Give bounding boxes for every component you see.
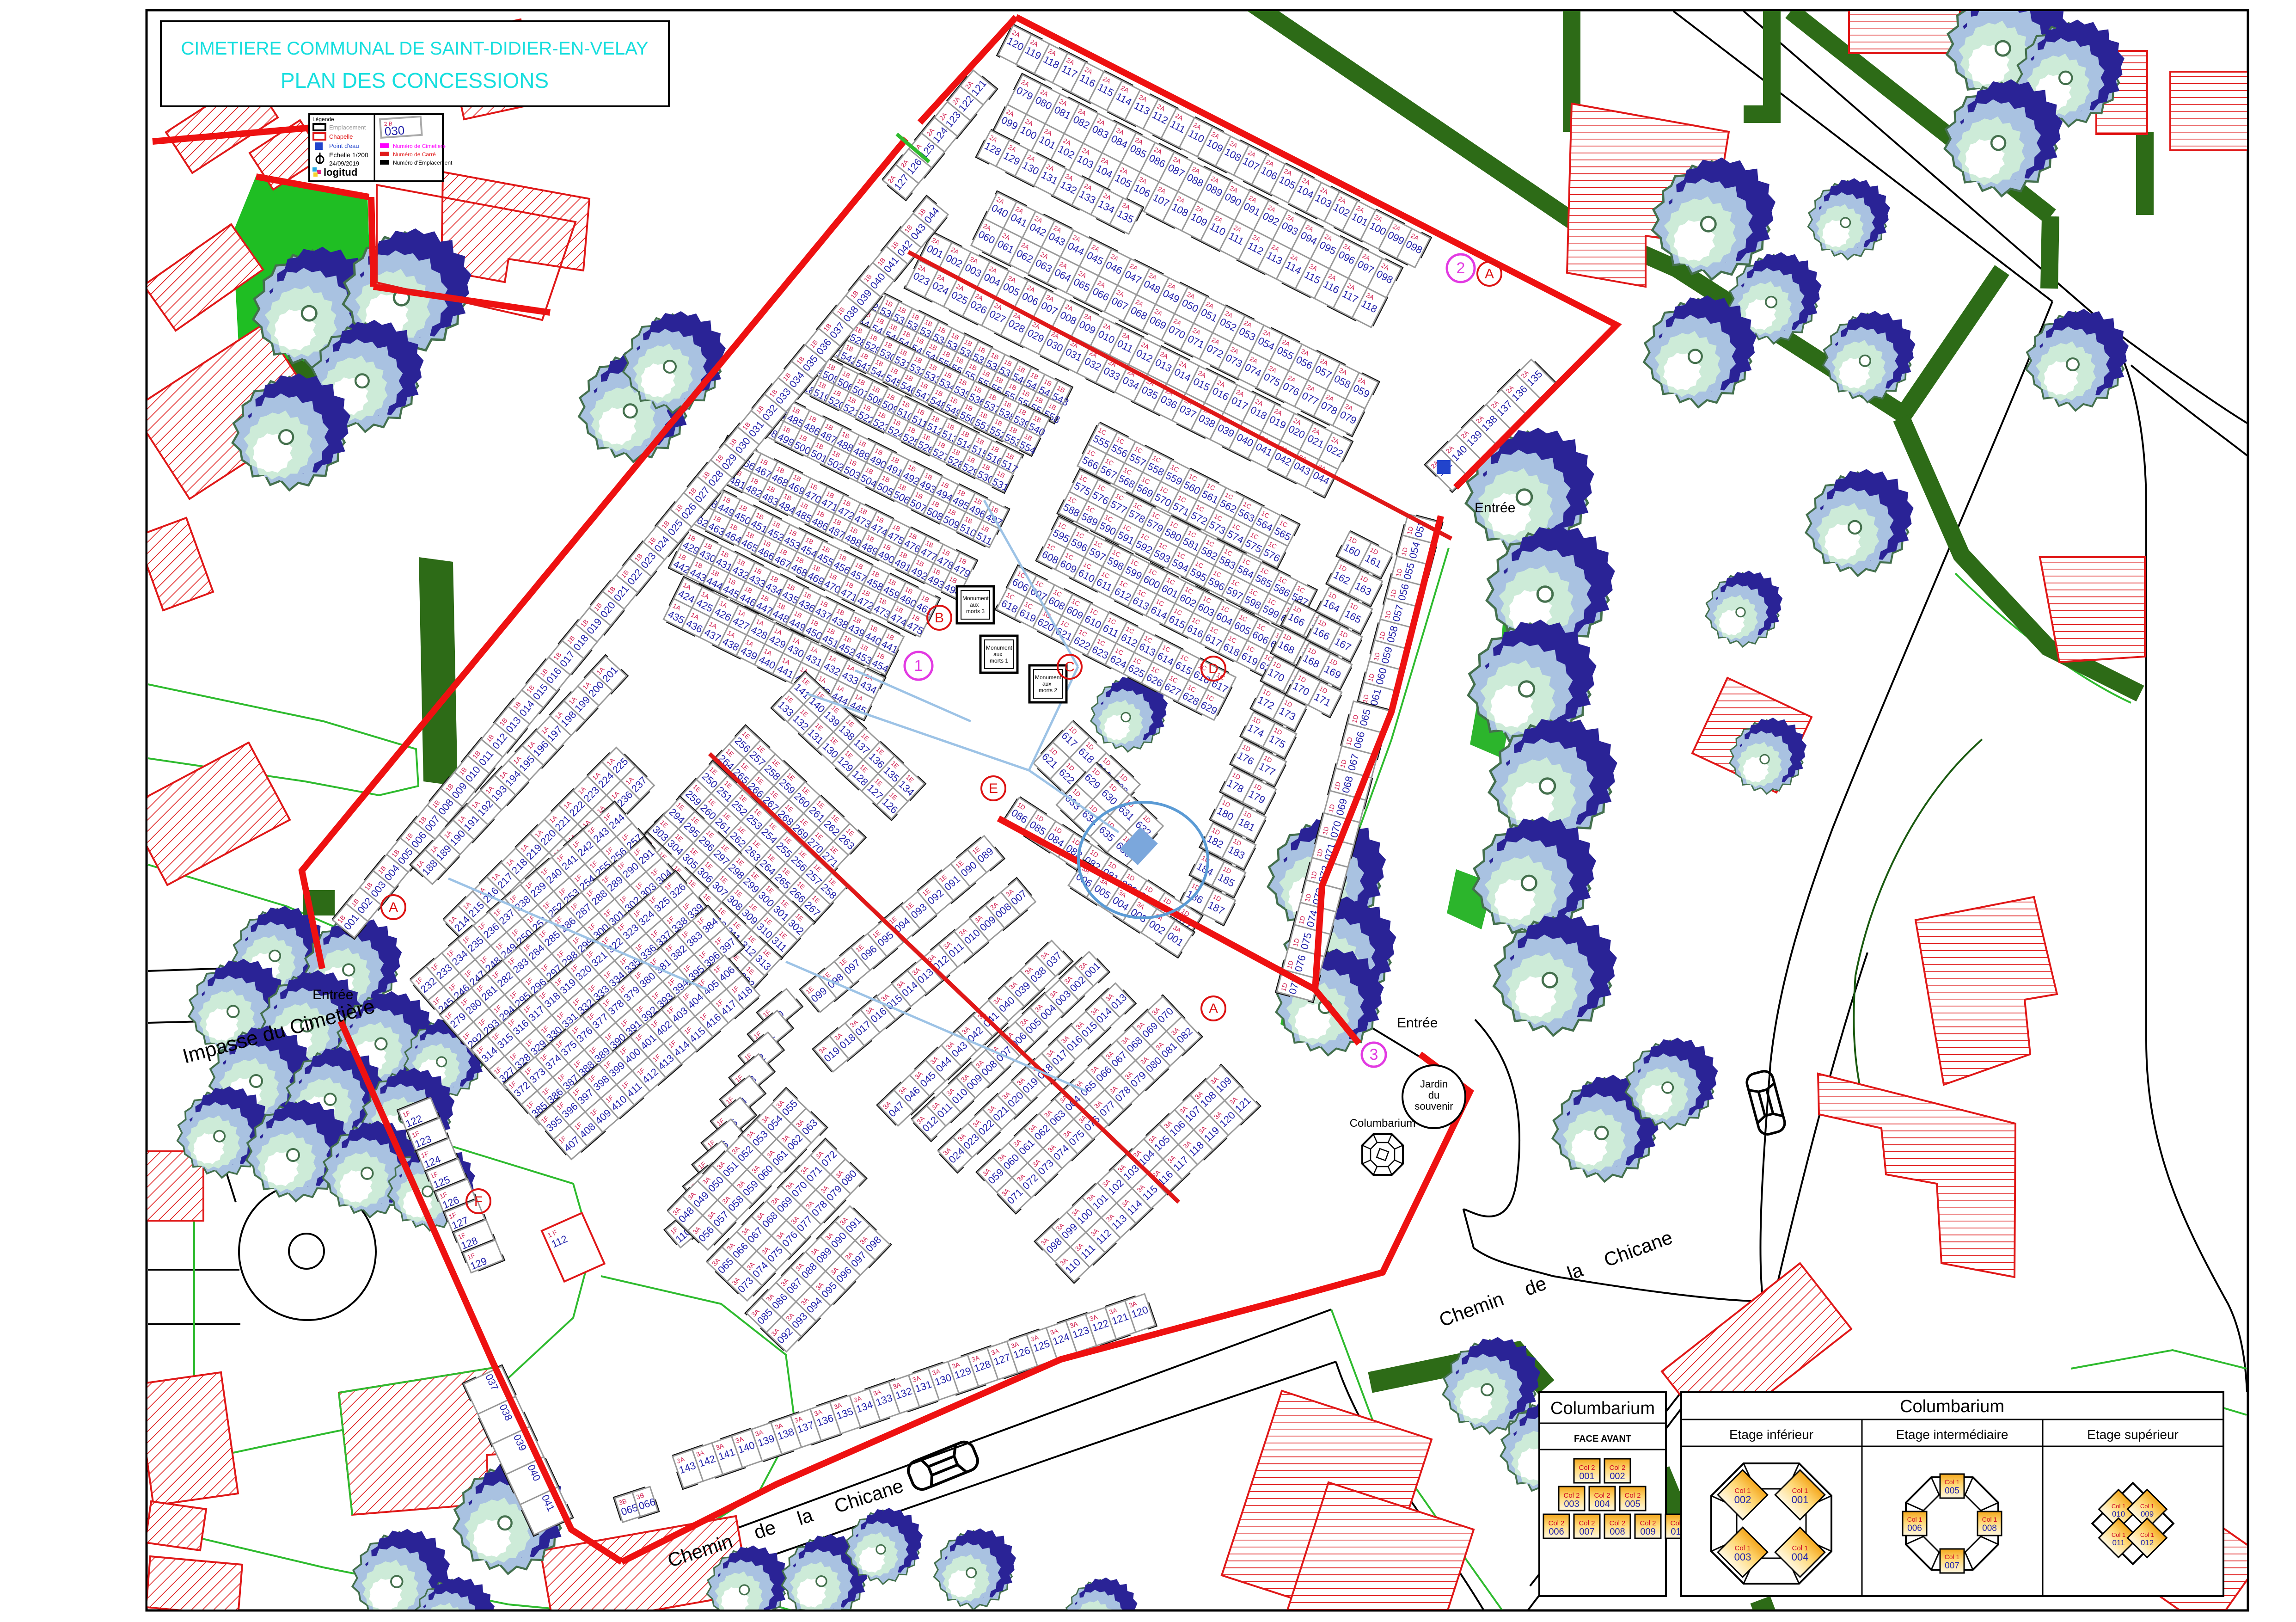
svg-text:B: B [935,610,944,626]
svg-text:Echelle 1/200: Echelle 1/200 [329,151,368,159]
svg-text:008: 008 [1610,1527,1625,1537]
svg-text:A: A [1209,1001,1218,1016]
svg-text:009: 009 [1640,1527,1655,1537]
svg-text:Col 1: Col 1 [2140,1531,2154,1538]
svg-text:011: 011 [2112,1538,2125,1547]
svg-text:C: C [1065,659,1075,675]
svg-text:du: du [1428,1089,1439,1101]
svg-text:002: 002 [1734,1494,1751,1505]
svg-text:A: A [1485,266,1494,282]
svg-text:Emplacement: Emplacement [329,124,366,131]
svg-text:aux: aux [970,602,979,608]
svg-text:003: 003 [1734,1551,1751,1563]
svg-text:Columbarium: Columbarium [1550,1399,1655,1418]
svg-text:004: 004 [1792,1551,1809,1563]
svg-text:24/09/2019: 24/09/2019 [329,160,359,167]
svg-text:Etage intermédiaire: Etage intermédiaire [1896,1427,2008,1442]
svg-text:006: 006 [1549,1527,1564,1537]
svg-text:F: F [474,1194,483,1209]
svg-text:Numéro d'Emplacement: Numéro d'Emplacement [393,160,453,166]
svg-text:Chapelle: Chapelle [329,133,353,140]
svg-text:morts 1: morts 1 [990,657,1008,664]
svg-text:souvenir: souvenir [1414,1100,1453,1112]
svg-text:3: 3 [1370,1046,1378,1063]
svg-text:Col 2: Col 2 [1624,1492,1641,1499]
svg-text:Monument: Monument [986,645,1012,651]
svg-text:Entrée: Entrée [1475,500,1515,516]
svg-text:A: A [389,900,398,915]
svg-text:Col 2: Col 2 [1594,1492,1610,1499]
svg-text:009: 009 [2141,1510,2154,1518]
svg-text:Columbarium: Columbarium [1900,1397,2004,1416]
svg-text:Columbarium: Columbarium [1350,1117,1416,1130]
svg-text:CIMETIERE COMMUNAL DE SAINT-DI: CIMETIERE COMMUNAL DE SAINT-DIDIER-EN-VE… [181,38,648,59]
svg-text:logitud: logitud [324,166,357,178]
svg-text:007: 007 [1945,1561,1959,1571]
svg-text:Col 1: Col 1 [2112,1503,2125,1510]
svg-text:Monument: Monument [1035,674,1061,681]
svg-text:Col 2: Col 2 [1548,1519,1564,1527]
svg-text:PLAN DES CONCESSIONS: PLAN DES CONCESSIONS [281,68,549,92]
svg-text:Numéro de Carré: Numéro de Carré [393,151,436,158]
svg-text:004: 004 [1594,1499,1610,1509]
svg-text:Numéro de Cimetiere: Numéro de Cimetiere [393,143,446,149]
svg-text:Monument: Monument [962,595,989,602]
svg-text:Etage inférieur: Etage inférieur [1729,1427,1813,1442]
svg-text:aux: aux [993,651,1002,657]
svg-text:006: 006 [1907,1524,1922,1533]
svg-text:morts 3: morts 3 [966,608,985,614]
svg-text:002: 002 [1610,1471,1625,1481]
svg-text:005: 005 [1945,1486,1959,1496]
svg-text:Entrée: Entrée [1397,1015,1438,1031]
svg-text:Entrée: Entrée [312,987,353,1002]
svg-text:morts 2: morts 2 [1039,687,1057,694]
svg-text:003: 003 [1564,1499,1579,1509]
svg-text:Col 2: Col 2 [1579,1464,1595,1472]
svg-text:Légende: Légende [312,116,334,123]
svg-text:007: 007 [1579,1527,1594,1537]
svg-text:012: 012 [2141,1538,2154,1547]
svg-text:Col 1: Col 1 [2140,1503,2154,1510]
svg-text:001: 001 [1579,1471,1594,1481]
svg-text:1: 1 [914,657,923,675]
svg-text:D: D [1208,661,1218,676]
svg-text:Col 2: Col 2 [1640,1519,1656,1527]
svg-text:Col 1: Col 1 [2112,1531,2125,1538]
svg-text:030: 030 [384,123,405,138]
svg-text:Col 1: Col 1 [1945,1478,1960,1486]
svg-text:Etage supérieur: Etage supérieur [2087,1427,2179,1442]
svg-text:005: 005 [1625,1499,1640,1509]
svg-text:Jardin: Jardin [1420,1078,1448,1090]
svg-text:010: 010 [2112,1510,2125,1518]
svg-text:Col 2: Col 2 [1609,1464,1625,1472]
svg-text:aux: aux [1042,681,1051,687]
svg-text:008: 008 [1982,1524,1997,1533]
svg-text:Col 1: Col 1 [1982,1516,1997,1523]
svg-text:FACE AVANT: FACE AVANT [1574,1434,1631,1444]
svg-text:Col 2: Col 2 [1579,1519,1595,1527]
svg-text:Col 1: Col 1 [1945,1553,1960,1561]
svg-text:E: E [989,781,998,796]
svg-text:Col 2: Col 2 [1563,1492,1580,1499]
svg-text:Col 2: Col 2 [1609,1519,1625,1527]
svg-text:2: 2 [1457,259,1465,277]
svg-text:Col 1: Col 1 [1907,1516,1923,1523]
svg-text:Point d'eau: Point d'eau [329,142,359,149]
svg-text:001: 001 [1792,1494,1809,1505]
